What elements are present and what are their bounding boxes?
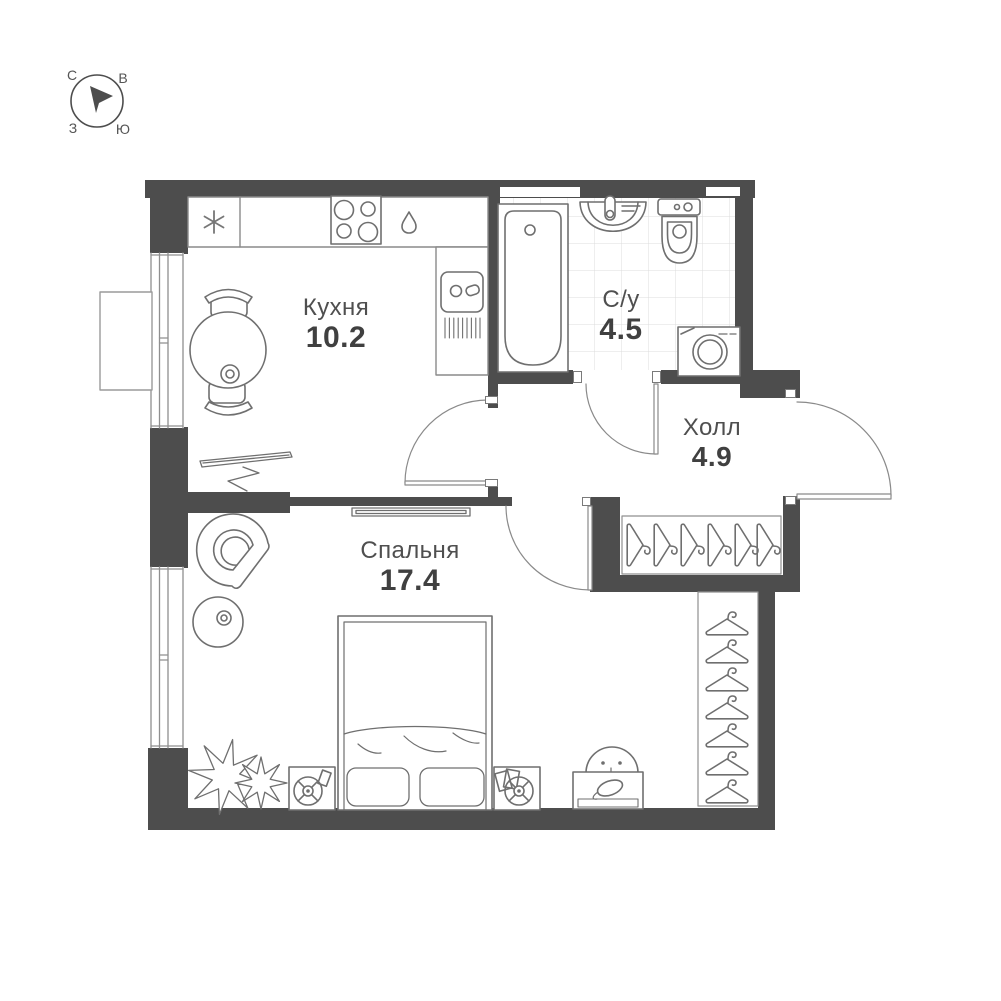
compass-arrow-icon	[90, 86, 113, 113]
kitchen-door-jamb-top	[485, 396, 498, 404]
bedroom-wardrobe	[698, 592, 758, 806]
hall-area: 4.9	[692, 443, 732, 471]
kitchen-door-jamb-bottom	[485, 479, 498, 487]
plan-graphics	[0, 0, 1001, 1001]
bed-icon	[338, 616, 492, 810]
stove-icon	[331, 196, 381, 244]
hall-label: Холл 4.9	[632, 415, 792, 471]
compass-south: Ю	[116, 121, 130, 137]
bedroom-door	[506, 506, 592, 590]
compass-west: З	[69, 120, 77, 136]
side-table-icon	[193, 597, 243, 647]
bathroom-area: 4.5	[599, 315, 642, 345]
exterior-ledge	[100, 292, 152, 390]
bathroom-door-jamb-left	[573, 371, 582, 383]
pillow-right	[420, 768, 484, 806]
bedroom-label: Спальня 17.4	[320, 538, 500, 596]
kitchen-tv-icon	[200, 452, 292, 491]
kitchen-door	[405, 400, 488, 485]
nightstand-left	[289, 767, 335, 810]
bathroom-label: С/у 4.5	[541, 287, 701, 345]
plant-icon	[189, 740, 287, 815]
bedroom-door-jamb	[582, 497, 591, 506]
kitchen-name: Кухня	[303, 295, 369, 320]
bathroom-name: С/у	[602, 287, 639, 312]
bedroom-window	[149, 567, 184, 748]
entry-door-jamb-bottom	[785, 496, 796, 505]
bedroom-name: Спальня	[360, 538, 459, 563]
dressing-table-icon	[573, 747, 643, 809]
toilet-icon	[658, 199, 700, 263]
entry-door-jamb-top	[785, 389, 796, 398]
compass-north: С	[67, 67, 77, 83]
bedroom-tv-icon	[352, 508, 470, 516]
kitchen-label: Кухня 10.2	[246, 295, 426, 353]
compass-rose: С В З Ю	[55, 55, 147, 147]
kitchen-area: 10.2	[306, 323, 366, 353]
bedroom-area: 17.4	[380, 566, 440, 596]
bathroom-door-jamb-right	[652, 371, 661, 383]
hall-name: Холл	[683, 415, 741, 440]
nightstand-right	[494, 767, 540, 810]
floor-plan: Кухня 10.2 С/у 4.5 Холл 4.9 Спальня 17.4…	[0, 0, 1001, 1001]
pillow-left	[347, 768, 409, 806]
compass-east: В	[118, 70, 127, 86]
armchair-icon	[197, 514, 269, 588]
entry-door	[797, 402, 891, 499]
hall-closet	[622, 516, 781, 574]
kitchen-window	[149, 253, 184, 428]
